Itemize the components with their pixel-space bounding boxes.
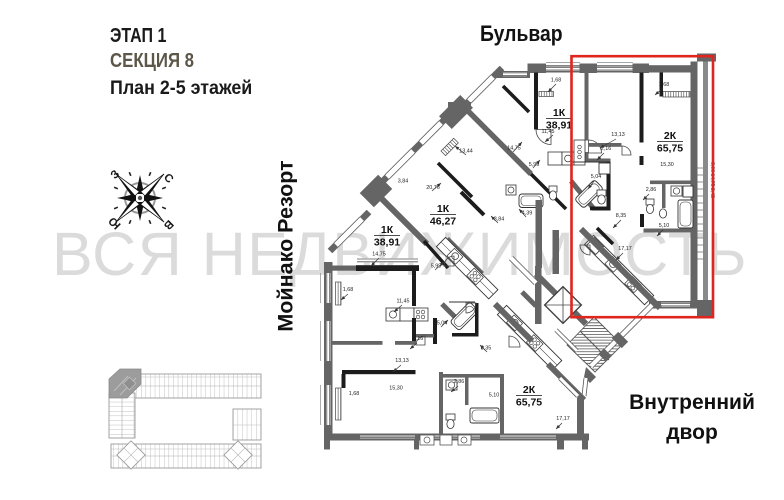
svg-text:1К: 1К [381, 224, 394, 236]
svg-text:15,30: 15,30 [660, 162, 674, 168]
svg-text:3,84: 3,84 [494, 217, 505, 223]
svg-text:2,16: 2,16 [413, 336, 424, 342]
svg-text:В: В [161, 217, 175, 231]
svg-text:2К: 2К [664, 130, 677, 142]
svg-text:С: С [161, 171, 175, 185]
svg-text:17,17: 17,17 [618, 246, 632, 252]
svg-text:46,27: 46,27 [430, 216, 456, 228]
svg-text:13,13: 13,13 [611, 132, 625, 138]
svg-text:1К: 1К [553, 107, 566, 119]
svg-text:3,84: 3,84 [398, 179, 409, 185]
svg-text:5,99: 5,99 [431, 264, 442, 270]
svg-text:1,68: 1,68 [551, 78, 562, 84]
svg-text:1,68: 1,68 [343, 287, 354, 293]
svg-text:15,30: 15,30 [389, 386, 403, 392]
svg-text:2К: 2К [523, 384, 536, 396]
svg-text:2,86: 2,86 [646, 187, 657, 193]
svg-text:1К: 1К [437, 203, 450, 215]
svg-text:5,10: 5,10 [659, 223, 670, 229]
svg-text:38,91: 38,91 [374, 237, 400, 249]
svg-text:65,75: 65,75 [657, 143, 683, 155]
svg-text:5,10: 5,10 [489, 393, 500, 399]
svg-text:65,75: 65,75 [516, 397, 542, 409]
svg-text:2,86: 2,86 [454, 379, 465, 385]
svg-text:13,13: 13,13 [395, 358, 409, 364]
svg-text:1,68: 1,68 [659, 82, 670, 88]
svg-text:17,17: 17,17 [556, 416, 570, 422]
svg-text:1,68: 1,68 [349, 391, 360, 397]
svg-text:8,35: 8,35 [616, 213, 627, 219]
svg-text:5,04: 5,04 [591, 174, 602, 180]
svg-text:14,75: 14,75 [372, 252, 386, 258]
svg-text:11,45: 11,45 [541, 129, 554, 135]
svg-text:11,45: 11,45 [396, 299, 409, 305]
